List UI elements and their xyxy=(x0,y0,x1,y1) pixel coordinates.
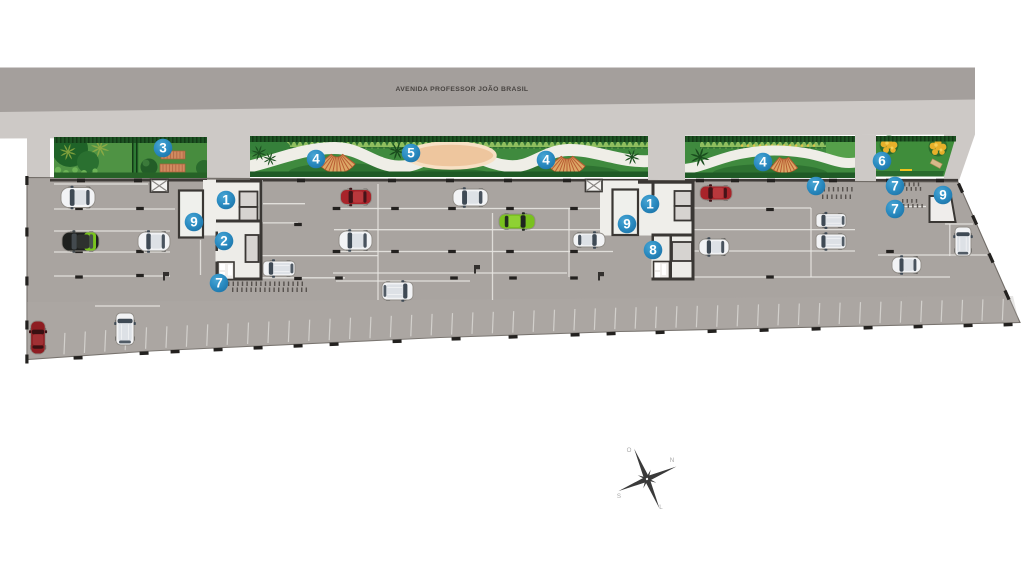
svg-text:AVENIDA PROFESSOR JOÃO BRASIL: AVENIDA PROFESSOR JOÃO BRASIL xyxy=(396,84,529,93)
svg-text:7: 7 xyxy=(215,276,223,291)
svg-text:7: 7 xyxy=(812,179,820,194)
svg-text:S: S xyxy=(617,493,621,500)
svg-text:L: L xyxy=(659,504,663,511)
svg-text:4: 4 xyxy=(759,155,767,170)
svg-text:3: 3 xyxy=(159,141,167,156)
svg-text:9: 9 xyxy=(623,217,631,232)
svg-text:9: 9 xyxy=(190,215,198,230)
svg-text:4: 4 xyxy=(312,152,320,167)
svg-text:1: 1 xyxy=(646,197,654,212)
svg-text:6: 6 xyxy=(878,154,886,169)
svg-text:9: 9 xyxy=(939,188,947,203)
svg-text:2: 2 xyxy=(220,234,228,249)
svg-text:O: O xyxy=(627,447,632,454)
svg-text:1: 1 xyxy=(222,193,230,208)
svg-text:7: 7 xyxy=(891,179,899,194)
svg-text:5: 5 xyxy=(407,146,415,161)
svg-text:7: 7 xyxy=(891,202,899,217)
svg-text:4: 4 xyxy=(542,153,550,168)
svg-text:8: 8 xyxy=(649,243,657,258)
svg-text:N: N xyxy=(670,457,674,464)
